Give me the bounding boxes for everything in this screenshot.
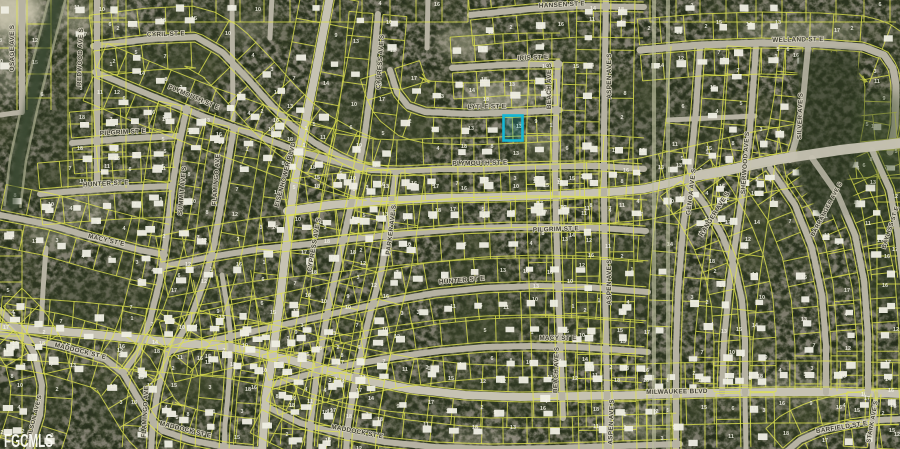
svg-text:4: 4 xyxy=(248,111,251,117)
svg-text:6: 6 xyxy=(732,406,735,412)
svg-text:13: 13 xyxy=(775,20,781,26)
svg-text:15: 15 xyxy=(706,146,712,152)
svg-text:16: 16 xyxy=(540,406,546,412)
svg-text:7: 7 xyxy=(138,374,141,380)
svg-text:3: 3 xyxy=(691,295,694,301)
svg-text:8: 8 xyxy=(621,179,624,185)
svg-text:14: 14 xyxy=(590,6,596,12)
svg-text:16: 16 xyxy=(884,254,890,260)
svg-text:11: 11 xyxy=(320,135,326,141)
svg-text:13: 13 xyxy=(679,196,685,202)
svg-text:3: 3 xyxy=(760,127,763,133)
svg-text:6: 6 xyxy=(682,104,685,110)
svg-text:11: 11 xyxy=(423,422,429,428)
svg-text:15: 15 xyxy=(719,283,725,289)
svg-text:12: 12 xyxy=(893,327,899,333)
svg-text:PLYMOUTH ST E: PLYMOUTH ST E xyxy=(452,160,508,168)
svg-text:17: 17 xyxy=(356,388,362,394)
svg-text:17: 17 xyxy=(541,210,547,216)
svg-text:13: 13 xyxy=(870,180,876,186)
svg-text:7: 7 xyxy=(335,377,338,383)
svg-text:9: 9 xyxy=(217,309,220,315)
svg-text:18: 18 xyxy=(322,410,328,416)
svg-text:5: 5 xyxy=(7,288,10,294)
svg-text:11: 11 xyxy=(177,355,183,361)
svg-text:12: 12 xyxy=(185,262,191,268)
svg-text:16: 16 xyxy=(236,262,242,268)
svg-text:18: 18 xyxy=(0,38,2,44)
svg-text:10: 10 xyxy=(751,191,757,197)
svg-text:9: 9 xyxy=(494,410,497,416)
svg-text:8: 8 xyxy=(11,374,14,380)
svg-text:11: 11 xyxy=(865,221,871,227)
svg-text:16: 16 xyxy=(383,294,389,300)
svg-text:13: 13 xyxy=(561,205,567,211)
svg-text:2: 2 xyxy=(134,153,137,159)
svg-text:11: 11 xyxy=(307,399,313,405)
svg-text:13: 13 xyxy=(187,128,193,134)
svg-text:3: 3 xyxy=(464,242,467,248)
svg-text:18: 18 xyxy=(623,366,629,372)
svg-text:3: 3 xyxy=(136,260,139,266)
svg-text:9: 9 xyxy=(347,294,350,300)
svg-text:1: 1 xyxy=(772,197,775,203)
svg-text:13: 13 xyxy=(509,82,515,88)
svg-text:15: 15 xyxy=(573,64,579,70)
svg-text:8: 8 xyxy=(353,187,356,193)
svg-text:9: 9 xyxy=(397,404,400,410)
svg-text:17: 17 xyxy=(227,105,233,111)
svg-text:16: 16 xyxy=(793,53,799,59)
svg-text:13: 13 xyxy=(110,384,116,390)
svg-text:6: 6 xyxy=(566,146,569,152)
svg-text:8: 8 xyxy=(432,182,435,188)
svg-text:1: 1 xyxy=(550,123,553,129)
svg-text:1: 1 xyxy=(624,425,627,431)
svg-text:15: 15 xyxy=(716,20,722,26)
svg-text:3: 3 xyxy=(723,216,726,222)
svg-text:18: 18 xyxy=(757,374,763,380)
svg-text:18: 18 xyxy=(324,239,330,245)
svg-text:5: 5 xyxy=(777,47,780,53)
svg-text:17: 17 xyxy=(3,325,9,331)
svg-text:10: 10 xyxy=(0,59,3,65)
svg-text:11: 11 xyxy=(537,25,543,31)
svg-text:4: 4 xyxy=(379,1,382,7)
svg-text:15: 15 xyxy=(736,327,742,333)
svg-text:3: 3 xyxy=(173,319,176,325)
svg-text:13: 13 xyxy=(230,362,236,368)
svg-text:15: 15 xyxy=(710,85,716,91)
svg-text:2: 2 xyxy=(714,269,717,275)
svg-text:10: 10 xyxy=(513,184,519,190)
svg-text:13: 13 xyxy=(204,118,210,124)
svg-text:2: 2 xyxy=(584,308,587,314)
svg-text:4: 4 xyxy=(165,405,168,411)
svg-text:18: 18 xyxy=(268,127,274,133)
svg-text:4: 4 xyxy=(195,324,198,330)
svg-text:8: 8 xyxy=(589,143,592,149)
svg-text:8: 8 xyxy=(187,412,190,418)
svg-text:12: 12 xyxy=(201,279,207,285)
svg-text:16: 16 xyxy=(305,293,311,299)
svg-text:16: 16 xyxy=(588,253,594,259)
svg-text:5: 5 xyxy=(382,131,385,137)
svg-text:16: 16 xyxy=(547,270,553,276)
svg-text:9: 9 xyxy=(810,401,813,407)
svg-text:12: 12 xyxy=(8,235,14,241)
svg-text:5: 5 xyxy=(484,328,487,334)
svg-text:MILWAUKEE BLVD: MILWAUKEE BLVD xyxy=(646,388,708,396)
svg-text:16: 16 xyxy=(273,118,279,124)
svg-text:ASPEN AVE S: ASPEN AVE S xyxy=(606,259,613,305)
svg-text:6: 6 xyxy=(261,301,264,307)
svg-text:10: 10 xyxy=(242,343,248,349)
svg-text:15: 15 xyxy=(270,310,276,316)
svg-text:18: 18 xyxy=(446,409,452,415)
svg-text:4: 4 xyxy=(637,199,640,205)
svg-text:18: 18 xyxy=(289,403,295,409)
svg-text:9: 9 xyxy=(621,311,624,317)
svg-text:11: 11 xyxy=(450,304,456,310)
svg-text:9: 9 xyxy=(295,330,298,336)
svg-text:1: 1 xyxy=(163,115,166,121)
svg-text:18: 18 xyxy=(618,7,624,13)
svg-text:11: 11 xyxy=(503,305,509,311)
svg-text:10: 10 xyxy=(261,368,267,374)
svg-text:14: 14 xyxy=(139,71,145,77)
svg-text:12: 12 xyxy=(586,238,592,244)
svg-text:2: 2 xyxy=(172,366,175,372)
svg-text:1: 1 xyxy=(339,179,342,185)
svg-text:13: 13 xyxy=(676,163,682,169)
svg-text:14: 14 xyxy=(885,377,891,383)
svg-text:10: 10 xyxy=(587,364,593,370)
svg-text:8: 8 xyxy=(310,225,313,231)
svg-text:8: 8 xyxy=(510,358,513,364)
svg-text:15: 15 xyxy=(617,328,623,334)
svg-text:10: 10 xyxy=(405,214,411,220)
svg-text:7: 7 xyxy=(60,319,63,325)
svg-text:11: 11 xyxy=(676,30,682,36)
svg-text:3: 3 xyxy=(287,336,290,342)
svg-text:FGCMLS: FGCMLS xyxy=(4,431,53,449)
svg-text:10: 10 xyxy=(225,31,231,37)
svg-text:14: 14 xyxy=(323,81,329,87)
svg-text:18: 18 xyxy=(314,184,320,190)
svg-text:6: 6 xyxy=(41,92,44,98)
svg-text:3: 3 xyxy=(726,373,729,379)
svg-text:4: 4 xyxy=(123,226,126,232)
svg-text:5: 5 xyxy=(231,5,234,11)
svg-text:14: 14 xyxy=(582,357,588,363)
svg-text:4: 4 xyxy=(711,322,714,328)
svg-text:4: 4 xyxy=(843,403,846,409)
svg-text:7: 7 xyxy=(356,323,359,329)
svg-text:16: 16 xyxy=(434,2,440,8)
svg-text:5: 5 xyxy=(240,165,243,171)
svg-text:10: 10 xyxy=(729,350,735,356)
svg-text:3: 3 xyxy=(434,212,437,218)
svg-text:11: 11 xyxy=(584,206,590,212)
svg-text:11: 11 xyxy=(97,90,103,96)
svg-text:11: 11 xyxy=(104,164,110,170)
svg-text:16: 16 xyxy=(379,182,385,188)
svg-text:16: 16 xyxy=(216,132,222,138)
svg-text:11: 11 xyxy=(481,47,487,53)
svg-text:17: 17 xyxy=(301,250,307,256)
svg-text:7: 7 xyxy=(130,305,133,311)
svg-text:3: 3 xyxy=(260,225,263,231)
svg-text:3: 3 xyxy=(329,378,332,384)
svg-text:2: 2 xyxy=(691,3,694,9)
svg-text:BEACH AVE S: BEACH AVE S xyxy=(546,62,553,109)
svg-text:8: 8 xyxy=(341,353,344,359)
svg-text:1: 1 xyxy=(131,316,134,322)
svg-text:4: 4 xyxy=(82,254,85,260)
svg-text:7: 7 xyxy=(294,281,297,287)
svg-text:10: 10 xyxy=(526,360,532,366)
svg-text:4: 4 xyxy=(99,315,102,321)
svg-text:16: 16 xyxy=(623,168,629,174)
svg-text:13: 13 xyxy=(620,339,626,345)
svg-text:3: 3 xyxy=(271,67,274,73)
svg-text:13: 13 xyxy=(468,126,474,132)
svg-text:5: 5 xyxy=(363,213,366,219)
svg-text:18: 18 xyxy=(461,144,467,150)
svg-text:5: 5 xyxy=(461,83,464,89)
svg-text:3: 3 xyxy=(514,176,517,182)
svg-text:9: 9 xyxy=(837,241,840,247)
svg-text:7: 7 xyxy=(164,54,167,60)
svg-text:10: 10 xyxy=(840,374,846,380)
svg-text:12: 12 xyxy=(390,48,396,54)
svg-text:15: 15 xyxy=(314,175,320,181)
svg-text:11: 11 xyxy=(593,424,599,430)
svg-text:15: 15 xyxy=(854,408,860,414)
svg-text:11: 11 xyxy=(360,375,366,381)
svg-text:6: 6 xyxy=(115,148,118,154)
svg-text:1: 1 xyxy=(591,180,594,186)
svg-text:15: 15 xyxy=(205,354,211,360)
svg-text:7: 7 xyxy=(383,359,386,365)
svg-text:6: 6 xyxy=(787,47,790,53)
svg-text:12: 12 xyxy=(32,38,38,44)
svg-text:18: 18 xyxy=(350,250,356,256)
svg-text:5: 5 xyxy=(847,363,850,369)
svg-text:14: 14 xyxy=(752,323,758,329)
svg-text:5: 5 xyxy=(681,156,684,162)
svg-text:11: 11 xyxy=(74,5,80,11)
svg-text:12: 12 xyxy=(500,379,506,385)
svg-text:8: 8 xyxy=(542,43,545,49)
svg-text:12: 12 xyxy=(488,30,494,36)
svg-text:4: 4 xyxy=(638,172,641,178)
svg-text:4: 4 xyxy=(744,245,747,251)
svg-text:2: 2 xyxy=(851,26,854,32)
svg-text:18: 18 xyxy=(346,414,352,420)
svg-text:4: 4 xyxy=(70,206,73,212)
svg-text:7: 7 xyxy=(23,363,26,369)
svg-text:3: 3 xyxy=(811,366,814,372)
svg-text:4: 4 xyxy=(252,53,255,59)
svg-text:3: 3 xyxy=(510,242,513,248)
svg-text:6: 6 xyxy=(178,273,181,279)
svg-text:12: 12 xyxy=(201,238,207,244)
svg-text:5: 5 xyxy=(740,101,743,107)
svg-text:10: 10 xyxy=(351,102,357,108)
svg-text:3: 3 xyxy=(763,408,766,414)
svg-text:15: 15 xyxy=(171,383,177,389)
svg-text:2: 2 xyxy=(117,26,120,32)
svg-text:1: 1 xyxy=(210,267,213,273)
svg-text:14: 14 xyxy=(588,63,594,69)
svg-text:14: 14 xyxy=(752,272,758,278)
svg-text:16: 16 xyxy=(197,356,203,362)
svg-text:12: 12 xyxy=(117,348,123,354)
svg-text:1: 1 xyxy=(531,330,534,336)
svg-text:2: 2 xyxy=(56,387,59,393)
svg-text:4: 4 xyxy=(779,130,782,136)
svg-text:7: 7 xyxy=(789,219,792,225)
svg-text:13: 13 xyxy=(12,341,18,347)
svg-text:17: 17 xyxy=(644,330,650,336)
svg-text:5: 5 xyxy=(804,372,807,378)
svg-text:17: 17 xyxy=(293,309,299,315)
svg-text:15: 15 xyxy=(569,176,575,182)
svg-text:9: 9 xyxy=(535,119,538,125)
svg-text:7: 7 xyxy=(813,343,816,349)
svg-text:2: 2 xyxy=(360,248,363,254)
svg-text:10: 10 xyxy=(99,7,105,13)
svg-text:15: 15 xyxy=(701,405,707,411)
svg-text:13: 13 xyxy=(287,104,293,110)
svg-text:14: 14 xyxy=(152,340,158,346)
svg-text:7: 7 xyxy=(718,50,721,56)
svg-text:5: 5 xyxy=(162,137,165,143)
svg-text:2: 2 xyxy=(706,300,709,306)
svg-text:12: 12 xyxy=(114,90,120,96)
svg-text:1: 1 xyxy=(631,267,634,273)
svg-text:4: 4 xyxy=(437,146,440,152)
svg-text:18: 18 xyxy=(614,378,620,384)
svg-text:3: 3 xyxy=(366,412,369,418)
svg-text:7: 7 xyxy=(701,350,704,356)
svg-text:7: 7 xyxy=(134,202,137,208)
svg-text:8: 8 xyxy=(590,203,593,209)
svg-text:9: 9 xyxy=(355,220,358,226)
svg-text:3: 3 xyxy=(120,400,123,406)
svg-text:7: 7 xyxy=(151,322,154,328)
svg-text:12: 12 xyxy=(205,360,211,366)
svg-text:14: 14 xyxy=(368,396,374,402)
svg-text:2: 2 xyxy=(693,371,696,377)
svg-text:10: 10 xyxy=(523,269,529,275)
svg-text:6: 6 xyxy=(615,172,618,178)
svg-text:11: 11 xyxy=(619,203,625,209)
svg-text:3: 3 xyxy=(97,220,100,226)
svg-text:8: 8 xyxy=(276,394,279,400)
svg-text:11: 11 xyxy=(218,140,224,146)
svg-text:4: 4 xyxy=(12,310,15,316)
svg-text:14: 14 xyxy=(330,256,336,262)
svg-text:16: 16 xyxy=(836,405,842,411)
svg-text:10: 10 xyxy=(386,20,392,26)
svg-text:3: 3 xyxy=(239,92,242,98)
svg-text:16: 16 xyxy=(779,401,785,407)
svg-text:3: 3 xyxy=(558,178,561,184)
svg-text:7: 7 xyxy=(69,166,72,172)
svg-text:10: 10 xyxy=(567,279,573,285)
svg-text:10: 10 xyxy=(190,199,196,205)
svg-text:5: 5 xyxy=(313,122,316,128)
svg-text:9: 9 xyxy=(268,422,271,428)
svg-text:16: 16 xyxy=(639,148,645,154)
svg-text:1: 1 xyxy=(572,304,575,310)
svg-text:7: 7 xyxy=(51,362,54,368)
svg-text:4: 4 xyxy=(324,388,327,394)
svg-text:7: 7 xyxy=(223,348,226,354)
svg-text:6: 6 xyxy=(350,125,353,131)
svg-text:3: 3 xyxy=(401,311,404,317)
svg-text:7: 7 xyxy=(456,181,459,187)
svg-text:13: 13 xyxy=(500,268,506,274)
svg-text:15: 15 xyxy=(801,275,807,281)
svg-text:14: 14 xyxy=(482,214,488,220)
svg-text:4: 4 xyxy=(305,387,308,393)
svg-text:1: 1 xyxy=(213,409,216,415)
svg-text:8: 8 xyxy=(165,77,168,83)
svg-text:3: 3 xyxy=(874,69,877,75)
svg-text:10: 10 xyxy=(345,305,351,311)
svg-text:5: 5 xyxy=(894,404,897,410)
svg-text:2: 2 xyxy=(139,278,142,284)
svg-text:2: 2 xyxy=(621,115,624,121)
svg-text:8: 8 xyxy=(491,144,494,150)
svg-text:2: 2 xyxy=(237,237,240,243)
svg-text:8: 8 xyxy=(624,91,627,97)
svg-text:13: 13 xyxy=(533,284,539,290)
svg-text:3: 3 xyxy=(417,310,420,316)
svg-text:15: 15 xyxy=(448,376,454,382)
svg-text:10: 10 xyxy=(321,299,327,305)
svg-text:17: 17 xyxy=(637,212,643,218)
svg-text:4: 4 xyxy=(620,20,623,26)
svg-text:7: 7 xyxy=(375,163,378,169)
svg-text:2: 2 xyxy=(648,26,651,32)
svg-text:12: 12 xyxy=(572,376,578,382)
svg-text:6: 6 xyxy=(109,22,112,28)
svg-text:5: 5 xyxy=(135,50,138,56)
svg-text:11: 11 xyxy=(672,142,678,148)
svg-text:11: 11 xyxy=(402,367,408,373)
svg-text:8: 8 xyxy=(742,353,745,359)
svg-text:17: 17 xyxy=(834,28,840,34)
svg-text:10: 10 xyxy=(350,176,356,182)
svg-text:10: 10 xyxy=(295,217,301,223)
svg-text:12: 12 xyxy=(232,212,238,218)
svg-text:17: 17 xyxy=(330,408,336,414)
svg-text:7: 7 xyxy=(236,187,239,193)
svg-text:2: 2 xyxy=(621,254,624,260)
svg-text:4: 4 xyxy=(18,405,21,411)
svg-text:13: 13 xyxy=(483,178,489,184)
svg-text:2: 2 xyxy=(705,24,708,30)
svg-text:12: 12 xyxy=(678,56,684,62)
svg-text:13: 13 xyxy=(510,425,516,431)
svg-text:4: 4 xyxy=(152,268,155,274)
svg-text:5: 5 xyxy=(164,149,167,155)
